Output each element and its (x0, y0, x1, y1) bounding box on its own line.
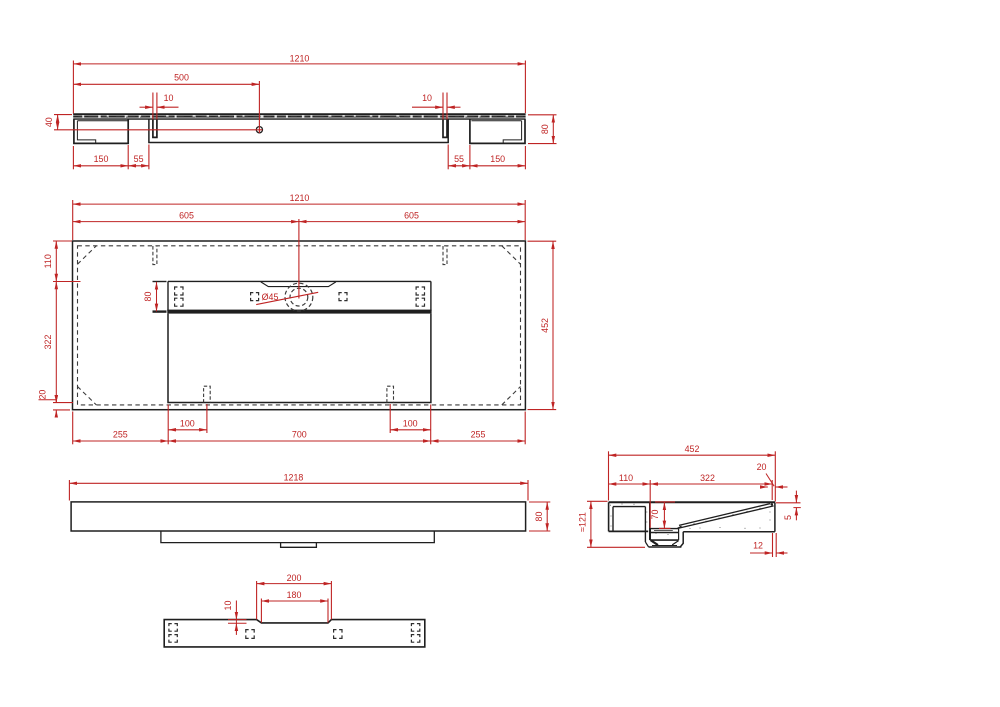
svg-text:10: 10 (223, 601, 233, 611)
svg-text:20: 20 (37, 390, 47, 400)
svg-text:110: 110 (619, 473, 633, 483)
svg-text:322: 322 (43, 335, 53, 350)
svg-text:10: 10 (164, 93, 174, 103)
svg-text:255: 255 (471, 430, 486, 440)
svg-text:80: 80 (143, 292, 153, 302)
svg-text:700: 700 (292, 430, 307, 440)
svg-text:55: 55 (454, 154, 464, 164)
svg-text:452: 452 (540, 318, 550, 333)
svg-text:5: 5 (783, 515, 793, 520)
svg-text:≈121: ≈121 (577, 512, 587, 532)
svg-text:110: 110 (43, 254, 53, 268)
svg-text:100: 100 (403, 419, 418, 429)
svg-text:80: 80 (534, 512, 544, 522)
svg-text:605: 605 (404, 211, 419, 221)
svg-text:12: 12 (753, 541, 763, 551)
svg-text:1210: 1210 (290, 193, 310, 203)
svg-text:605: 605 (179, 211, 194, 221)
svg-text:500: 500 (174, 72, 189, 82)
svg-text:180: 180 (287, 590, 302, 600)
svg-text:1218: 1218 (284, 472, 304, 482)
svg-text:150: 150 (94, 154, 109, 164)
svg-text:1210: 1210 (290, 53, 310, 63)
svg-text:150: 150 (490, 154, 505, 164)
svg-text:Ø45: Ø45 (262, 292, 279, 302)
svg-text:80: 80 (540, 124, 550, 134)
svg-text:40: 40 (44, 117, 54, 127)
svg-text:100: 100 (180, 419, 195, 429)
svg-text:20: 20 (757, 462, 767, 472)
svg-text:10: 10 (422, 93, 432, 103)
svg-text:55: 55 (134, 154, 144, 164)
svg-text:255: 255 (113, 430, 128, 440)
svg-text:322: 322 (700, 473, 715, 483)
svg-text:200: 200 (287, 573, 302, 583)
svg-text:70: 70 (650, 510, 660, 520)
svg-text:452: 452 (685, 444, 700, 454)
